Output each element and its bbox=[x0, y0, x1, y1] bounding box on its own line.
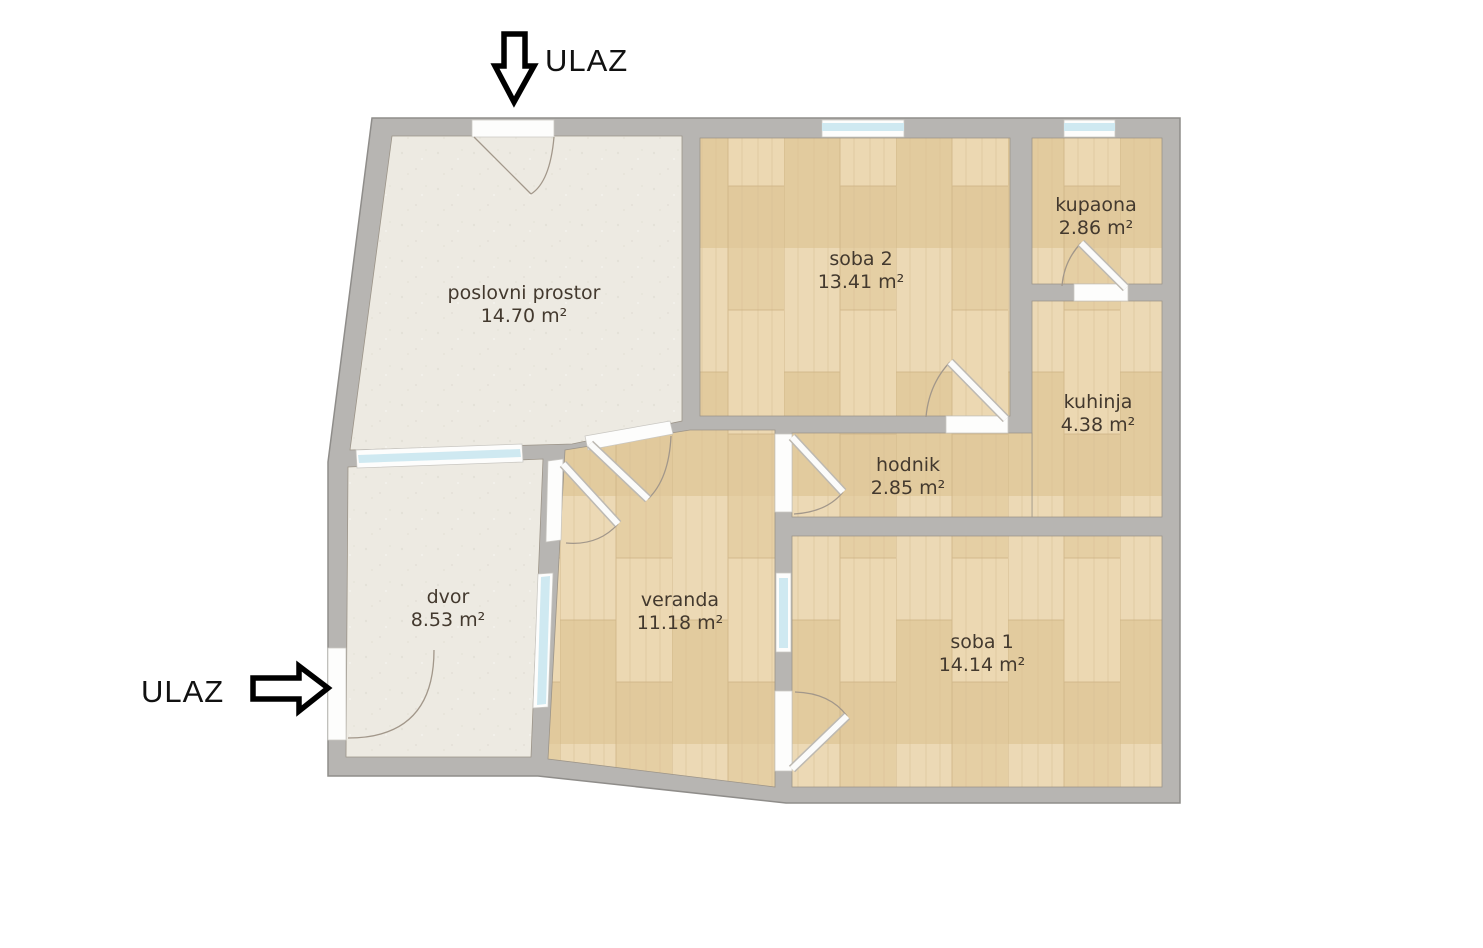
entrance-left: ULAZ bbox=[141, 666, 328, 711]
room-area-kupaona: 2.86 m² bbox=[1059, 217, 1133, 239]
entrance-top: ULAZ bbox=[495, 34, 628, 102]
window-kupaona bbox=[1064, 120, 1115, 137]
room-area-veranda: 11.18 m² bbox=[637, 612, 724, 634]
room-label-dvor: dvor bbox=[427, 586, 470, 608]
room-area-kuhinja: 4.38 m² bbox=[1061, 414, 1135, 436]
room-area-poslovni-prostor: 14.70 m² bbox=[481, 305, 568, 327]
room-area-hodnik: 2.85 m² bbox=[871, 477, 945, 499]
room-label-kuhinja: kuhinja bbox=[1064, 391, 1133, 413]
door-veranda-soba-1 bbox=[775, 691, 792, 771]
arrow-right-icon bbox=[253, 666, 328, 711]
room-label-poslovni-prostor: poslovni prostor bbox=[448, 282, 601, 304]
window-veranda-soba-1 bbox=[776, 573, 791, 652]
door-dvor-veranda bbox=[546, 459, 563, 542]
room-area-soba-1: 14.14 m² bbox=[939, 654, 1026, 676]
door-soba-2 bbox=[946, 416, 1008, 433]
door-veranda-hodnik bbox=[775, 434, 792, 512]
entrance-label-left: ULAZ bbox=[141, 674, 224, 709]
door-entry-poslovni bbox=[472, 120, 554, 137]
room-label-kupaona: kupaona bbox=[1055, 194, 1136, 216]
room-label-veranda: veranda bbox=[641, 589, 719, 611]
door-entry-dvor bbox=[328, 648, 346, 740]
room-area-soba-2: 13.41 m² bbox=[818, 271, 905, 293]
room-area-dvor: 8.53 m² bbox=[411, 609, 485, 631]
floor-plan-canvas: poslovni prostor 14.70 m² soba 2 13.41 m… bbox=[0, 0, 1483, 948]
room-label-soba-2: soba 2 bbox=[829, 248, 892, 270]
arrow-down-icon bbox=[495, 34, 534, 102]
room-label-soba-1: soba 1 bbox=[950, 631, 1013, 653]
room-label-hodnik: hodnik bbox=[876, 454, 940, 476]
floor-dvor bbox=[346, 459, 543, 757]
floor-plan-svg: poslovni prostor 14.70 m² soba 2 13.41 m… bbox=[0, 0, 1483, 948]
entrance-label-top: ULAZ bbox=[545, 43, 628, 78]
window-soba-2 bbox=[822, 120, 904, 137]
